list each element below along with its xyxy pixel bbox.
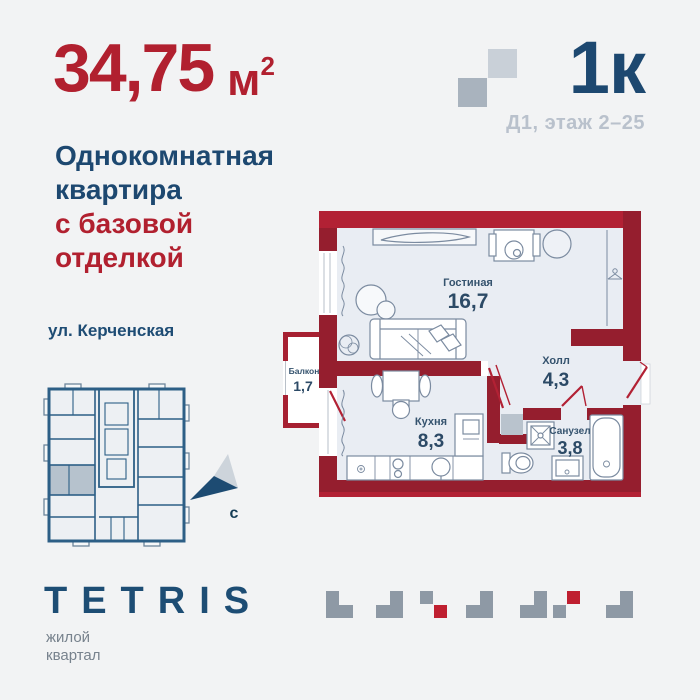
kitchen-counter (347, 456, 483, 480)
mini-plan-highlighted-unit (50, 465, 95, 495)
apartment-flyer: 34,75 м2 Однокомнатная квартира с базово… (0, 0, 700, 700)
apartment-title: Однокомнатная квартира с базовой отделко… (55, 139, 274, 275)
room-area-kitchen: 8,3 (418, 431, 444, 452)
street-label: ул. Керченская (48, 321, 174, 341)
building-floor-info: Д1, этаж 2–25 (435, 112, 645, 135)
tetris-glyph-corner-icon (606, 591, 633, 618)
brand-tagline-line-1: жилой (46, 629, 101, 647)
plan-type-badge: 1к (540, 24, 645, 112)
brand-tagline-line-2: квартал (46, 647, 101, 665)
desk-and-chair (489, 230, 540, 261)
armchair (543, 230, 571, 258)
room-area-bathroom: 3,8 (557, 438, 582, 458)
area-headline: 34,75 м2 (53, 30, 275, 110)
tetris-glyph-diagonal-icon (420, 591, 447, 618)
tetris-glyph-corner-icon (466, 591, 493, 618)
area-unit: м2 (227, 36, 275, 110)
sofa (370, 319, 466, 359)
room-area-hall: 4,3 (543, 370, 569, 391)
title-accent-line-2: отделкой (55, 241, 274, 275)
brand-wordmark: TETRIS (44, 580, 263, 623)
title-accent-line-1: с базовой (55, 207, 274, 241)
room-area-living: 16,7 (448, 290, 489, 313)
tetris-glyph-corner-icon (376, 591, 403, 618)
building-mini-plan (42, 382, 192, 548)
apartment-floor-plan: Гостиная 16,7 Холл 4,3 Кухня 8,3 Санузел… (283, 198, 655, 510)
title-line-1: Однокомнатная (55, 139, 274, 173)
toilet (502, 453, 533, 473)
bathroom-sink (552, 456, 583, 480)
tetris-glyph-diagonal-icon (553, 591, 580, 618)
tetris-glyph-corner-icon (520, 591, 547, 618)
room-name-bathroom: Санузел (549, 426, 590, 437)
tetris-glyph-corner-icon (326, 591, 353, 618)
title-line-2: квартира (55, 173, 274, 207)
room-name-hall: Холл (542, 355, 570, 367)
room-name-living: Гостиная (443, 277, 493, 289)
room-name-balcony: Балкон (289, 366, 320, 376)
compass-north-arrow: с (186, 450, 250, 522)
area-unit-letter: м (227, 54, 260, 105)
brand-square-icon-light (488, 49, 517, 78)
compass-label: с (230, 505, 239, 522)
area-unit-superscript: 2 (260, 51, 274, 81)
room-name-kitchen: Кухня (415, 416, 447, 428)
room-area-balcony: 1,7 (293, 378, 313, 394)
brand-square-icon-dark (458, 78, 487, 107)
washing-machine (501, 414, 523, 435)
area-value: 34,75 (53, 30, 213, 106)
bathtub (590, 415, 623, 480)
brand-tagline: жилой квартал (46, 629, 101, 665)
oven-unit (455, 414, 483, 456)
